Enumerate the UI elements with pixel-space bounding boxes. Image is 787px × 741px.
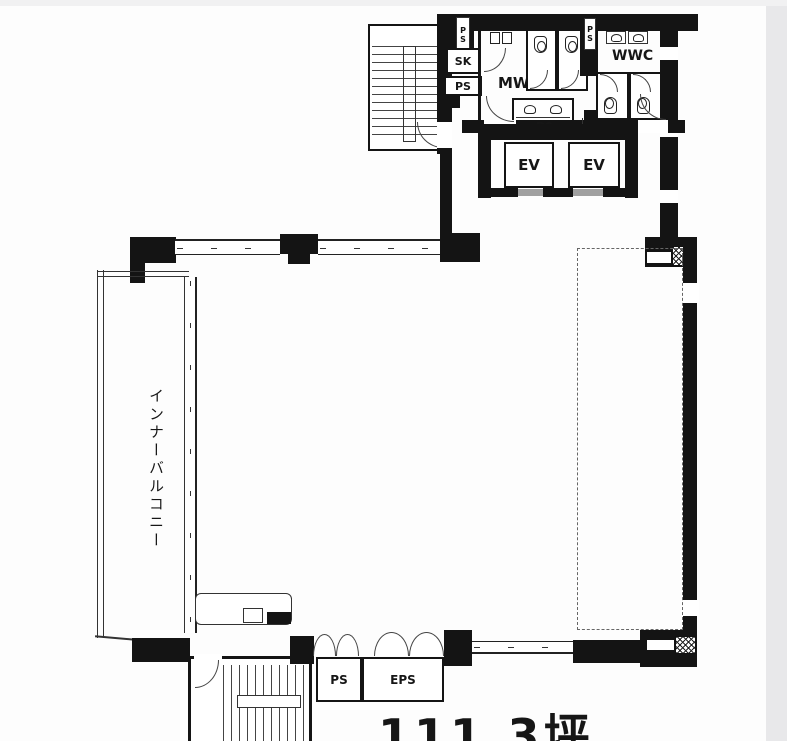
balcony-top-edge [97, 271, 189, 277]
door-gap [437, 122, 452, 148]
wwc-sink-box [606, 31, 626, 44]
ev-shaft-left [478, 124, 491, 198]
column [290, 636, 314, 664]
sink-icon [524, 105, 536, 114]
urinal-icon [490, 32, 500, 44]
sink-icon [550, 105, 562, 114]
shaft-label-bar [647, 640, 674, 650]
toilet-icon [604, 97, 617, 114]
balcony-bottom-edge [95, 635, 135, 640]
ev-shaft-right [625, 124, 638, 198]
ev-shaft-top [478, 124, 638, 140]
room-ps-top: PS [444, 76, 482, 96]
elevator-door [518, 189, 543, 196]
window-gap [660, 47, 678, 60]
scan-band-top [0, 0, 787, 6]
ev-shaft-bottom [603, 188, 638, 197]
kitchenette-unit [267, 612, 291, 624]
dashed-area-outline [577, 248, 683, 630]
elevator-car-2: EV [568, 142, 620, 188]
wall-under-ps [444, 96, 460, 108]
wall-mwc-west [478, 31, 481, 123]
stair-rail [237, 695, 301, 708]
balcony-outer-wall [97, 270, 104, 638]
door-arch [409, 632, 444, 656]
stair-rail [403, 46, 416, 142]
counter-line [516, 117, 570, 118]
urinal-icon [502, 32, 512, 44]
column [280, 234, 318, 254]
wall-se [573, 640, 643, 663]
wall-sw [132, 638, 190, 662]
wwc-sink-box [628, 31, 648, 44]
scan-band-right [766, 0, 787, 741]
door-arch [374, 632, 409, 656]
door-arch [336, 634, 359, 656]
column [130, 257, 145, 283]
window-band [175, 239, 280, 255]
pipe-shaft-hatch [675, 636, 696, 654]
room-ps-bottom: PS [316, 657, 362, 702]
elevator-door [573, 189, 603, 196]
toilet-icon [565, 36, 578, 53]
door-arc-mwc-entry [486, 96, 514, 122]
kitchenette-counter [195, 593, 292, 625]
floor-plan: PS SK PS MWC PS WWC PS EV EV [0, 0, 787, 741]
wall-hall-west [440, 154, 452, 238]
window-gap [660, 190, 678, 203]
window-band [472, 641, 574, 654]
door-arc-mwc-screen [484, 48, 506, 72]
shaft-ps-mid: PS [584, 18, 596, 50]
area-label: 111.3坪 [378, 700, 594, 741]
window-gap [681, 283, 699, 303]
toilet-icon [534, 36, 547, 53]
elevator-car-1: EV [504, 142, 554, 188]
shaft-ps-small [584, 110, 596, 124]
column [288, 252, 310, 264]
ev-shaft-bottom [543, 188, 573, 197]
door-arch [313, 634, 336, 656]
room-eps: EPS [362, 657, 444, 702]
column [440, 233, 480, 262]
window-gap [681, 600, 699, 616]
balcony-label: インナーバルコニー [146, 388, 167, 550]
column [444, 630, 472, 666]
balcony-window-wall [184, 277, 197, 633]
room-label-wwc: WWC [612, 48, 653, 64]
door-gap-wwc [638, 120, 668, 133]
room-sk: SK [446, 48, 480, 74]
ev-shaft-bottom [478, 188, 518, 197]
window-band [318, 239, 440, 255]
kitchenette-sink [243, 608, 263, 623]
